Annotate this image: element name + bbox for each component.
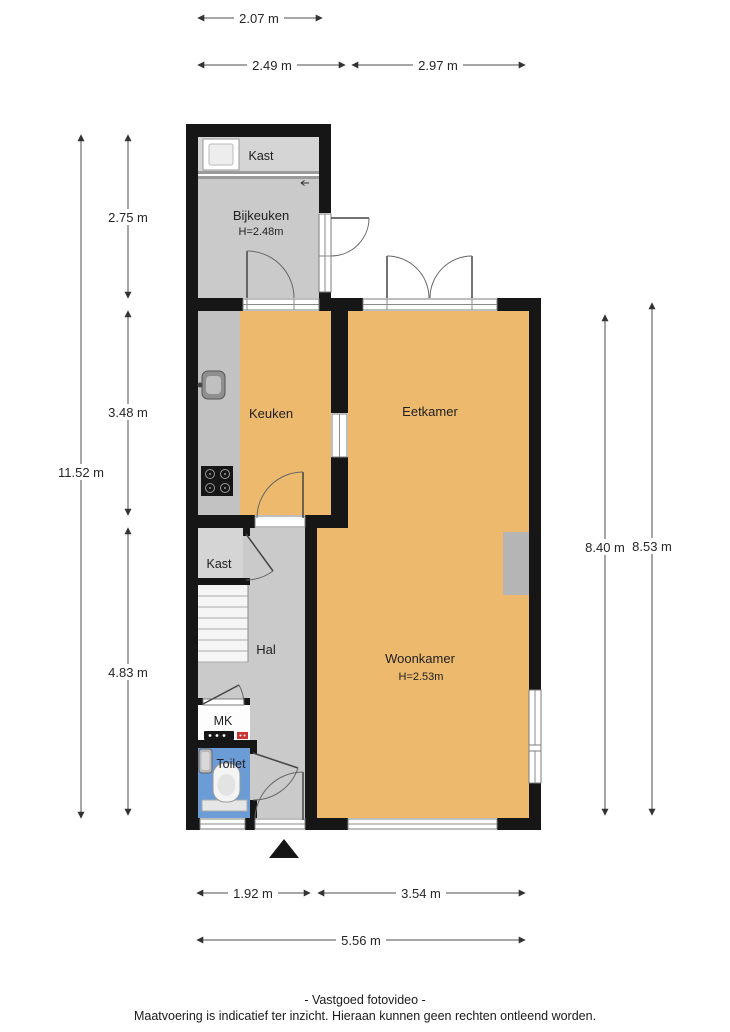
- dim-top-1: 2.07 m: [239, 11, 279, 26]
- wall-segment: [244, 698, 250, 705]
- wall-segment: [331, 298, 348, 413]
- room-eetkamer-woonkamer-floor: [317, 311, 529, 818]
- label-mk: MK: [214, 714, 233, 728]
- dim-left-2: 3.48 m: [108, 405, 148, 420]
- wall-segment: [198, 698, 203, 705]
- chimney-recess: [503, 532, 529, 595]
- toilet-sink-icon: [199, 749, 212, 773]
- wall-segment: [305, 528, 317, 818]
- window-bijkeuken-bottom: [243, 299, 319, 310]
- label-bijkeuken-height: H=2.48m: [239, 226, 284, 238]
- dim-left-3: 4.83 m: [108, 665, 148, 680]
- wall-segment: [529, 298, 541, 690]
- wall-segment: [198, 578, 250, 585]
- footer-brand: - Vastgoed fotovideo -: [304, 993, 425, 1007]
- wall-segment: [305, 818, 348, 830]
- label-kast-hal: Kast: [206, 557, 232, 571]
- wall-segment: [186, 818, 200, 830]
- door-opening-keuken: [255, 516, 305, 527]
- label-eetkamer: Eetkamer: [402, 404, 458, 419]
- wall-segment: [497, 818, 541, 830]
- wall-segment: [319, 124, 331, 213]
- partition-track: [198, 174, 319, 176]
- label-woonkamer: Woonkamer: [385, 651, 456, 666]
- footer: - Vastgoed fotovideo - Maatvoering is in…: [134, 993, 596, 1023]
- room-floors: [198, 137, 529, 818]
- glazed-door-bijkeuken-right: [319, 214, 331, 292]
- label-kast-top: Kast: [248, 149, 274, 163]
- label-bijkeuken: Bijkeuken: [233, 208, 289, 223]
- wall-segment: [198, 298, 243, 311]
- label-keuken: Keuken: [249, 406, 293, 421]
- door-arc: [387, 256, 429, 298]
- door-arc: [331, 218, 369, 256]
- wall-segment: [198, 515, 255, 528]
- dim-left-total: 11.52 m: [58, 465, 104, 480]
- window-woonkamer-bottom: [348, 819, 497, 829]
- window-toilet-bottom: [200, 819, 245, 829]
- dim-right-2: 8.53 m: [632, 539, 672, 554]
- window-eetkamer-top: [363, 299, 497, 310]
- front-door-threshold: [255, 819, 305, 829]
- meter-box-icon: [204, 731, 248, 740]
- dim-top-3: 2.97 m: [418, 58, 458, 73]
- door-opening-mk: [203, 699, 244, 705]
- door-arc: [430, 256, 472, 298]
- wall-segment: [186, 124, 331, 137]
- wall-segment: [198, 740, 257, 748]
- dim-top-2: 2.49 m: [252, 58, 292, 73]
- dim-bottom-2: 3.54 m: [401, 886, 441, 901]
- stairs: [198, 585, 248, 662]
- label-woonkamer-height: H=2.53m: [399, 671, 444, 683]
- wall-segment: [245, 818, 255, 830]
- stove-icon: [201, 466, 233, 496]
- dim-left-1: 2.75 m: [108, 210, 148, 225]
- footer-disclaimer: Maatvoering is indicatief ter inzicht. H…: [134, 1009, 596, 1023]
- label-hal: Hal: [256, 642, 276, 657]
- wall-segment: [186, 124, 198, 830]
- entrance-arrow-icon: [269, 839, 299, 858]
- serving-hatch-keuken: [332, 414, 347, 457]
- washing-machine-icon: [203, 139, 239, 170]
- label-toilet: Toilet: [216, 757, 246, 771]
- dim-bottom-total: 5.56 m: [341, 933, 381, 948]
- window-woonkamer-right: [529, 690, 541, 783]
- dim-bottom-1: 1.92 m: [233, 886, 273, 901]
- floorplan-page: Kast Bijkeuken H=2.48m Keuken Eetkamer W…: [0, 0, 730, 1032]
- dim-right-1: 8.40 m: [585, 540, 625, 555]
- floorplan-canvas: Kast Bijkeuken H=2.48m Keuken Eetkamer W…: [0, 0, 730, 1032]
- wall-segment: [305, 515, 348, 528]
